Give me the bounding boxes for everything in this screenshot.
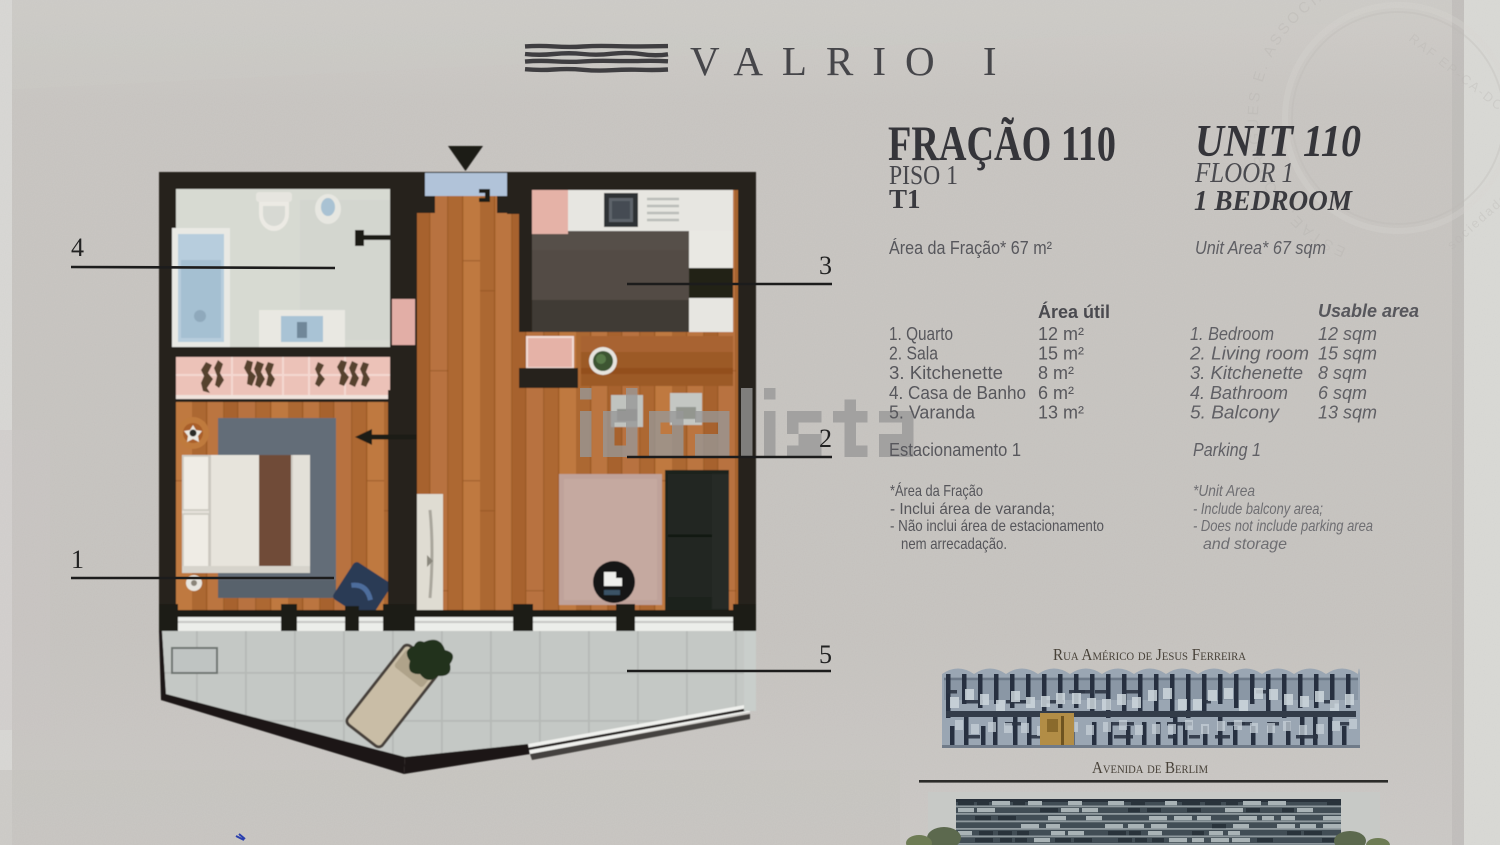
svg-text:15 m²: 15 m² (1038, 344, 1084, 364)
svg-text:5. Varanda: 5. Varanda (889, 402, 976, 422)
svg-text:- Include balcony area;: - Include balcony area; (1193, 501, 1323, 518)
svg-text:4. Bathroom: 4. Bathroom (1190, 383, 1288, 403)
svg-text:nem arrecadação.: nem arrecadação. (901, 536, 1007, 553)
svg-text:2. Living room: 2. Living room (1189, 344, 1309, 364)
svg-text:1 BEDROOM: 1 BEDROOM (1194, 185, 1353, 217)
svg-text:- Não inclui área de estaciona: - Não inclui área de estacionamento (890, 518, 1104, 535)
svg-text:*Unit Area: *Unit Area (1193, 483, 1255, 500)
svg-text:15 sqm: 15 sqm (1318, 344, 1377, 364)
svg-text:- Inclui área de varanda;: - Inclui área de varanda; (890, 501, 1055, 518)
svg-text:Área da Fração* 67 m²: Área da Fração* 67 m² (889, 238, 1052, 258)
svg-text:8 m²: 8 m² (1038, 363, 1074, 383)
svg-text:4: 4 (71, 233, 84, 262)
svg-text:Estacionamento 1: Estacionamento 1 (889, 440, 1021, 460)
svg-text:5. Balcony: 5. Balcony (1190, 402, 1280, 422)
svg-text:8 sqm: 8 sqm (1318, 363, 1367, 383)
svg-text:13 m²: 13 m² (1038, 402, 1084, 422)
svg-text:Área útil: Área útil (1038, 301, 1110, 322)
svg-text:13 sqm: 13 sqm (1318, 402, 1377, 422)
svg-text:1: 1 (71, 545, 84, 574)
svg-text:3. Kitchenette: 3. Kitchenette (889, 363, 1003, 383)
svg-text:- Does not include parking are: - Does not include parking area (1193, 518, 1373, 535)
svg-text:and storage: and storage (1203, 536, 1287, 553)
svg-text:Parking 1: Parking 1 (1193, 440, 1261, 460)
svg-text:12 m²: 12 m² (1038, 324, 1084, 344)
svg-text:3: 3 (819, 251, 832, 280)
svg-text:2. Sala: 2. Sala (889, 344, 939, 364)
svg-text:1. Quarto: 1. Quarto (889, 324, 953, 344)
svg-text:T1: T1 (889, 184, 921, 214)
svg-text:2: 2 (819, 424, 832, 453)
svg-text:6 sqm: 6 sqm (1318, 383, 1367, 403)
svg-text:1. Bedroom: 1. Bedroom (1190, 324, 1274, 344)
svg-text:5: 5 (819, 640, 832, 669)
svg-text:6 m²: 6 m² (1038, 383, 1074, 403)
svg-text:3. Kitchenette: 3. Kitchenette (1190, 363, 1303, 383)
svg-text:Unit Area* 67 sqm: Unit Area* 67 sqm (1195, 238, 1326, 258)
svg-text:*Área da Fração: *Área da Fração (890, 481, 983, 500)
svg-text:4. Casa de Banho: 4. Casa de Banho (889, 383, 1026, 403)
svg-text:Rua Américo de Jesus Ferreira: Rua Américo de Jesus Ferreira (1053, 645, 1246, 664)
svg-text:Avenida de Berlim: Avenida de Berlim (1092, 758, 1208, 777)
svg-text:Usable area: Usable area (1318, 301, 1419, 321)
svg-text:12 sqm: 12 sqm (1318, 324, 1377, 344)
svg-text:VALRIO I: VALRIO I (690, 38, 1016, 84)
